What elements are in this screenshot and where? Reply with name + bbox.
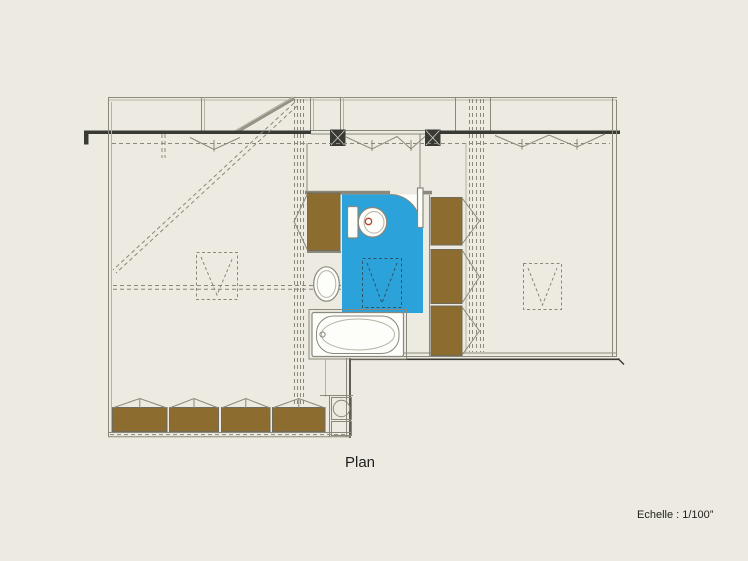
floor-plan-canvas: Plan Echelle : 1/100” <box>0 0 748 561</box>
plan-label: Plan <box>345 454 375 471</box>
door-leaf <box>418 188 424 228</box>
sink-symbol <box>314 267 340 301</box>
toilet-symbol <box>348 207 387 239</box>
scale-label: Echelle : 1/100” <box>637 509 714 521</box>
bathtub-symbol <box>309 310 407 360</box>
beam-end-hook <box>84 131 89 145</box>
